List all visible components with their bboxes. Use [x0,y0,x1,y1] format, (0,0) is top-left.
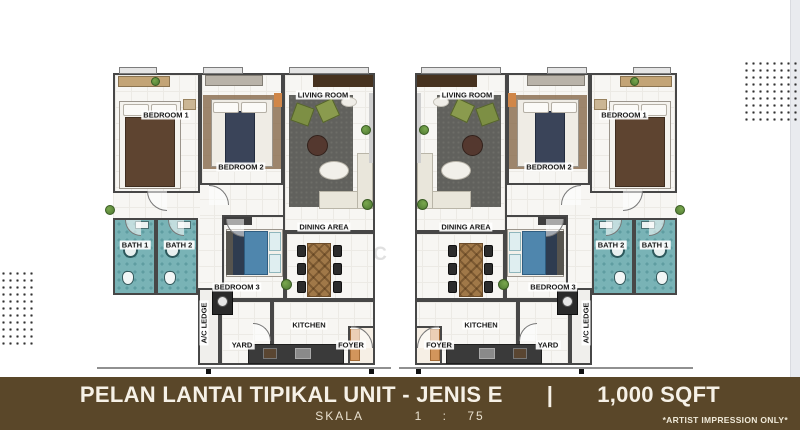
toilet [656,271,668,285]
plant-icon [105,205,115,215]
window [119,67,157,74]
bed-2-blanket [225,111,255,165]
room-label-yard: YARD [536,341,561,350]
floor-plan-poster: E P I C H O M E S [0,0,800,430]
floor-plan-left: BEDROOM 1 BEDROOM 2 LIVING ROOM BATH 1 B… [113,73,375,365]
bed-3-blanket [546,231,557,275]
dining-chair [297,263,306,275]
bed-2-blanket [535,111,565,165]
plant-icon [417,199,428,210]
kitchen-sink [295,348,311,359]
plan-title: PELAN LANTAI TIPIKAL UNIT - JENIS E [80,382,503,408]
desk [118,76,170,87]
title-bar: PELAN LANTAI TIPIKAL UNIT - JENIS E | 1,… [0,377,800,430]
dot-grid-top-right [743,60,800,121]
nightstand [594,99,607,110]
window [289,67,369,74]
room-label-bath-1: BATH 1 [120,241,151,250]
room-label-dining: DINING AREA [439,223,492,232]
bed-1-blanket [125,117,175,187]
desk [620,76,672,87]
room-label-kitchen: KITCHEN [462,321,499,330]
room-label-bedroom-2: BEDROOM 2 [216,163,265,172]
room-label-yard: YARD [230,341,255,350]
room-label-ac-ledge: A/C LEDGE [582,301,591,346]
dining-chair [333,281,342,293]
pillow [241,102,267,113]
dining-table [459,243,483,297]
kitchen-sink [479,348,495,359]
room-label-bath-2: BATH 2 [596,241,627,250]
nightstand [183,99,196,110]
pillow [551,102,577,113]
dining-chair [297,281,306,293]
plant-icon [281,279,292,290]
pillow [269,232,281,251]
ground-line [97,367,391,369]
column-marker [579,369,584,374]
bed-3-blanket [244,231,268,275]
tv-console [313,75,373,87]
pillow [269,254,281,273]
dining-chair [448,281,457,293]
window [421,67,501,74]
nightstand [274,93,282,107]
plant-icon [630,77,639,86]
bed-3-headboard [226,231,233,275]
dining-chair [448,245,457,257]
plant-icon [675,205,685,215]
column-marker [206,369,211,374]
bed-3-blanket [522,231,546,275]
plant-icon [361,125,371,135]
room-label-ac-ledge: A/C LEDGE [200,301,209,346]
pillow [523,102,549,113]
plant-icon [498,279,509,290]
plant-icon [362,199,373,210]
toilet [164,271,176,285]
room-label-foyer: FOYER [336,341,366,350]
ground-line [399,367,693,369]
room-label-bedroom-3: BEDROOM 3 [212,283,261,292]
column-marker [369,369,374,374]
scale-label: SKALA [315,409,363,423]
pillow [509,232,521,251]
side-table [441,161,471,180]
room-label-dining: DINING AREA [297,223,350,232]
room-label-living: LIVING ROOM [296,91,350,100]
stove [513,348,527,359]
artist-impression-note: *ARTIST IMPRESSION ONLY* [663,415,788,425]
title-row: PELAN LANTAI TIPIKAL UNIT - JENIS E | 1,… [0,382,800,408]
tv-console [417,75,477,87]
room-label-bedroom-2: BEDROOM 2 [524,163,573,172]
right-edge-stripe [790,0,800,378]
bed-3-blanket [233,231,244,275]
dining-chair [484,263,493,275]
bed-1-blanket [615,117,665,187]
dining-chair [333,245,342,257]
room-label-bath-2: BATH 2 [164,241,195,250]
washing-machine-door [562,296,573,307]
room-label-bedroom-1: BEDROOM 1 [599,111,648,120]
room-label-foyer: FOYER [424,341,454,350]
column-marker [416,369,421,374]
dot-grid-left [0,270,34,345]
pillow [509,254,521,273]
toilet [614,271,626,285]
window [203,67,243,74]
pillow [213,102,239,113]
plant-icon [419,125,429,135]
room-label-living: LIVING ROOM [440,91,494,100]
room-label-bath-1: BATH 1 [640,241,671,250]
coffee-table [462,135,483,156]
dining-chair [484,281,493,293]
room-label-bedroom-3: BEDROOM 3 [528,283,577,292]
window [547,67,587,74]
toilet [122,271,134,285]
coffee-table [307,135,328,156]
room-label-bedroom-1: BEDROOM 1 [141,111,190,120]
bed-3-headboard [557,231,564,275]
wardrobe [527,75,585,86]
floor-plan-right: BEDROOM 1 BEDROOM 2 LIVING ROOM BATH 1 B… [415,73,677,365]
title-divider: | [547,382,553,408]
washing-machine-door [217,296,228,307]
dining-chair [448,263,457,275]
unit-area: 1,000 SQFT [597,382,720,408]
dining-table [307,243,331,297]
wardrobe [205,75,263,86]
stove [263,348,277,359]
nightstand [508,93,516,107]
room-label-kitchen: KITCHEN [290,321,327,330]
dining-chair [484,245,493,257]
scale-value: 1 : 75 [415,409,485,423]
dining-chair [297,245,306,257]
side-table [319,161,349,180]
dining-chair [333,263,342,275]
plant-icon [151,77,160,86]
window [633,67,671,74]
